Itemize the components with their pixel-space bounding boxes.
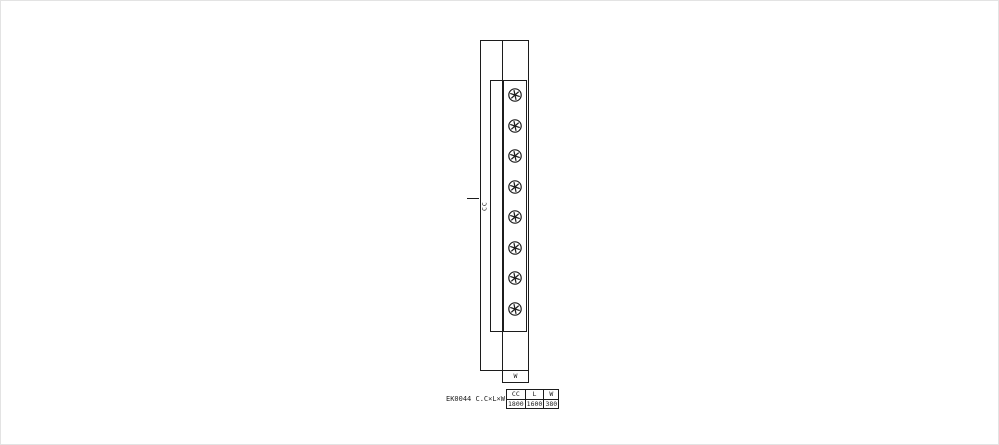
w-dimension-label: W — [505, 372, 526, 381]
screw-icon — [507, 179, 523, 195]
screw-icon — [507, 270, 523, 286]
screw-icon — [507, 240, 523, 256]
dimension-table-header-cell: L — [525, 390, 544, 400]
dimension-table: CCLW 18001600380 — [506, 389, 559, 409]
dimension-table-header-row: CCLW — [507, 390, 559, 400]
technical-drawing-canvas: CC W EK0044 C.C×L×W CCLW 18001600380 — [0, 0, 999, 445]
dimension-table-header-cell: W — [544, 390, 559, 400]
inner-panel-left — [490, 80, 503, 332]
cc-dimension-label: CC — [479, 193, 490, 219]
dimension-table-value-cell: 1800 — [507, 399, 526, 409]
drawing-title: EK0044 C.C×L×W — [439, 394, 505, 405]
frame-bottom-line — [502, 370, 529, 371]
screw-icon — [507, 87, 523, 103]
screw-icon — [507, 301, 523, 317]
cc-dimension-tick — [467, 198, 479, 199]
dimension-table-value-row: 18001600380 — [507, 399, 559, 409]
screw-icon — [507, 209, 523, 225]
dimension-table-header-cell: CC — [507, 390, 526, 400]
screw-icon — [507, 118, 523, 134]
dimension-table-value-cell: 1600 — [525, 399, 544, 409]
screw-icon — [507, 148, 523, 164]
dimension-table-value-cell: 380 — [544, 399, 559, 409]
